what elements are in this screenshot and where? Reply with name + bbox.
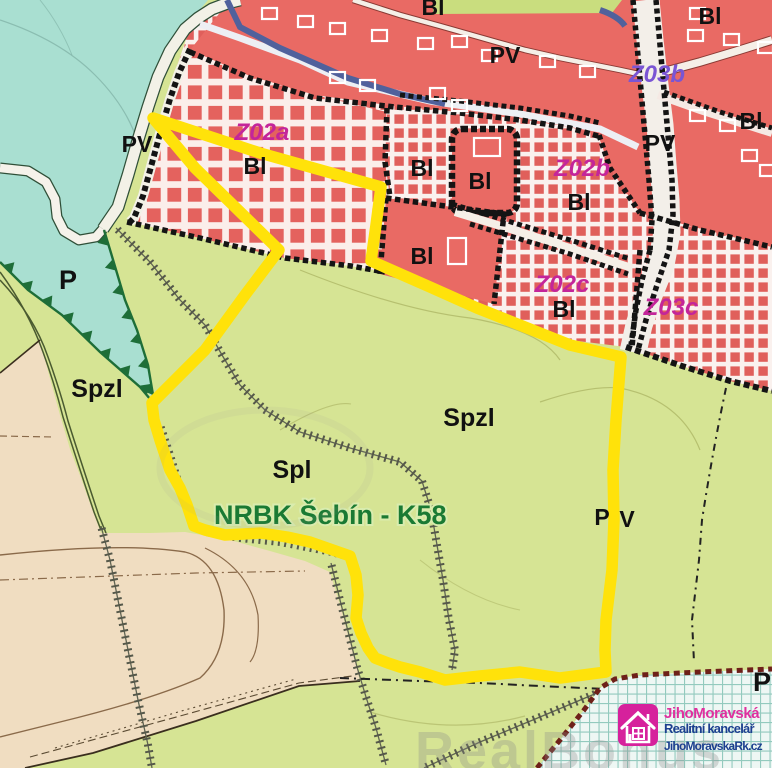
svg-text:V: V: [619, 506, 635, 532]
svg-text:Bl: Bl: [699, 3, 722, 29]
svg-text:PV: PV: [122, 131, 153, 157]
svg-text:Z02c: Z02c: [534, 271, 590, 298]
svg-text:Spl: Spl: [273, 456, 312, 484]
svg-text:Bl: Bl: [740, 108, 763, 134]
svg-text:PV: PV: [645, 130, 676, 156]
svg-text:Z03b: Z03b: [628, 61, 685, 88]
svg-text:JihoMoravská: JihoMoravská: [664, 705, 760, 722]
svg-text:Bl: Bl: [411, 243, 434, 269]
svg-text:Z02a: Z02a: [234, 119, 290, 146]
svg-text:Bl: Bl: [411, 155, 434, 181]
svg-text:Spzl: Spzl: [71, 375, 122, 403]
svg-text:Spzl: Spzl: [443, 404, 494, 432]
svg-text:Z03c: Z03c: [643, 294, 699, 321]
svg-text:P: P: [594, 504, 609, 530]
svg-text:Bl: Bl: [568, 189, 591, 215]
svg-text:Realitní kancelář: Realitní kancelář: [664, 721, 755, 736]
svg-text:P: P: [753, 667, 771, 697]
svg-text:Z02b: Z02b: [553, 155, 610, 182]
svg-text:Bl: Bl: [553, 296, 576, 322]
svg-text:PV: PV: [490, 42, 521, 68]
svg-text:Bl: Bl: [244, 153, 267, 179]
svg-text:Bl: Bl: [422, 0, 445, 20]
svg-text:P: P: [59, 265, 77, 295]
svg-text:Bl: Bl: [469, 168, 492, 194]
svg-text:JihoMoravskaRk.cz: JihoMoravskaRk.cz: [664, 739, 763, 753]
